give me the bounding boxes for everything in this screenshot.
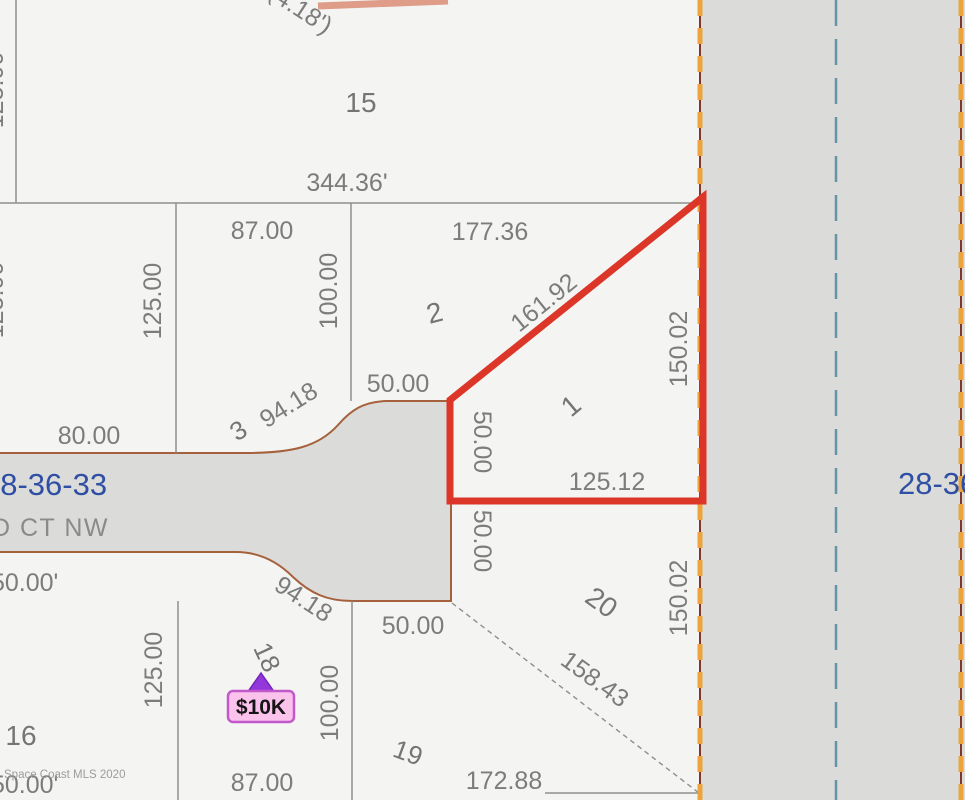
dim-50ft-left: 50.00' <box>0 569 58 597</box>
section-label-left: 28-36-33 <box>0 467 107 502</box>
dim-87-bot: 87.00 <box>231 769 294 797</box>
dim-150-02-bot: 150.02 <box>665 560 693 636</box>
dim-344-36: 344.36' <box>306 169 387 197</box>
section-label-right: 28-36-33 <box>898 466 965 501</box>
dim-80: 80.00 <box>58 422 121 450</box>
dim-87-top: 87.00 <box>231 217 294 245</box>
dim-100-bot: 100.00 <box>316 665 344 741</box>
salmon-parcel-edge <box>318 1 448 6</box>
right-of-way-band <box>700 0 965 800</box>
watermark: Space Coast MLS 2020 <box>4 769 125 781</box>
dim-50-v-top: 50.00 <box>468 411 496 474</box>
dim-50-v-bot: 50.00 <box>468 510 496 573</box>
street-name: D CT NW <box>0 514 109 542</box>
lot-15-label: 15 <box>345 87 376 118</box>
plat-map-viewport: (4.18') 344.36' 87.00 177.36 100.00 125.… <box>0 0 965 800</box>
dim-125-bot: 125.00 <box>140 632 168 708</box>
dim-50-top: 50.00 <box>367 370 430 398</box>
dim-125-left-top: 125.00 <box>0 52 9 128</box>
dim-177-36: 177.36 <box>452 218 528 246</box>
dim-125-left-mid: 125.00 <box>0 262 9 338</box>
lot-16-label: 16 <box>5 720 36 751</box>
dim-172-88: 172.88 <box>466 767 542 795</box>
dim-50-bot: 50.00 <box>382 612 445 640</box>
dim-100-top: 100.00 <box>315 253 343 329</box>
dim-150-02-top: 150.02 <box>665 311 693 387</box>
dim-125-12: 125.12 <box>569 468 645 496</box>
dim-125-mid: 125.00 <box>139 263 167 339</box>
plat-map: (4.18') 344.36' 87.00 177.36 100.00 125.… <box>0 0 965 800</box>
price-badge-label[interactable]: $10K <box>236 696 286 719</box>
